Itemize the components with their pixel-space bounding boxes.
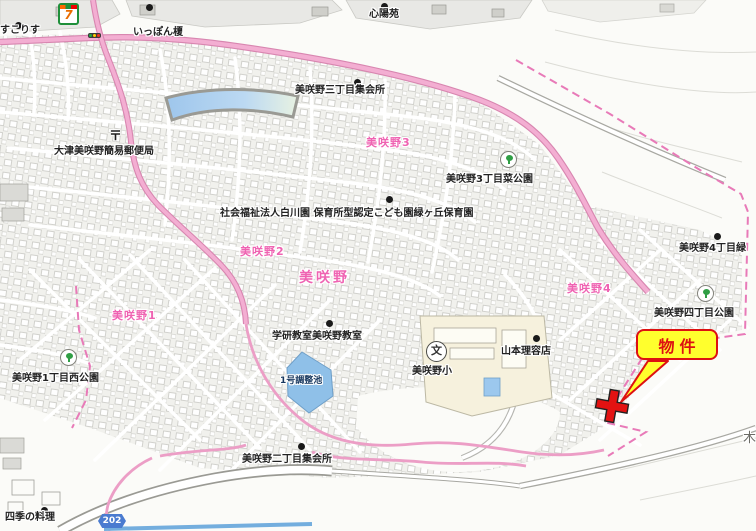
route-number-badge: 202 [98, 514, 126, 528]
map-label: 学研教室美咲野教室 [272, 331, 362, 342]
map-label: 美咲野3丁目菜公園 [446, 174, 533, 185]
property-callout: 物件 [636, 329, 718, 360]
map-label: 美咲野三丁目集会所 [295, 85, 385, 96]
map-label: 美咲野二丁目集会所 [242, 454, 332, 465]
map-label: 美咲野2 [240, 246, 285, 258]
map-label: 木 [743, 432, 756, 446]
map-label: 美咲野四丁目公園 [654, 308, 734, 319]
map-label: 美咲野1丁目西公園 [12, 373, 99, 384]
map-label: 心陽苑 [369, 9, 399, 20]
map-label: 四季の料理 [5, 512, 55, 523]
map-label: すこりす [0, 25, 40, 36]
map-label: いっぽん榎 [133, 27, 183, 38]
map-label: 社会福祉法人白川園 保育所型認定こども園緑ヶ丘保育園 [220, 208, 473, 219]
map-label: 美咲野4 [567, 283, 612, 295]
map-viewport[interactable]: 7〒文 すこりすいっぽん榎心陽苑美咲野三丁目集会所美咲野3美咲野3丁目菜公園大津… [0, 0, 756, 531]
map-label: 山本理容店 [501, 346, 551, 357]
map-labels-layer: すこりすいっぽん榎心陽苑美咲野三丁目集会所美咲野3美咲野3丁目菜公園大津美咲野簡… [0, 0, 756, 531]
map-label: 美咲野4丁目緑 [679, 243, 746, 254]
map-label: 美咲野3 [366, 137, 411, 149]
map-label: 美咲野 [299, 271, 350, 286]
map-label: 美咲野小 [412, 366, 452, 377]
map-label: 大津美咲野簡易郵便局 [54, 146, 154, 157]
map-label: 1号調整池 [280, 377, 322, 387]
map-label: 美咲野1 [112, 310, 157, 322]
